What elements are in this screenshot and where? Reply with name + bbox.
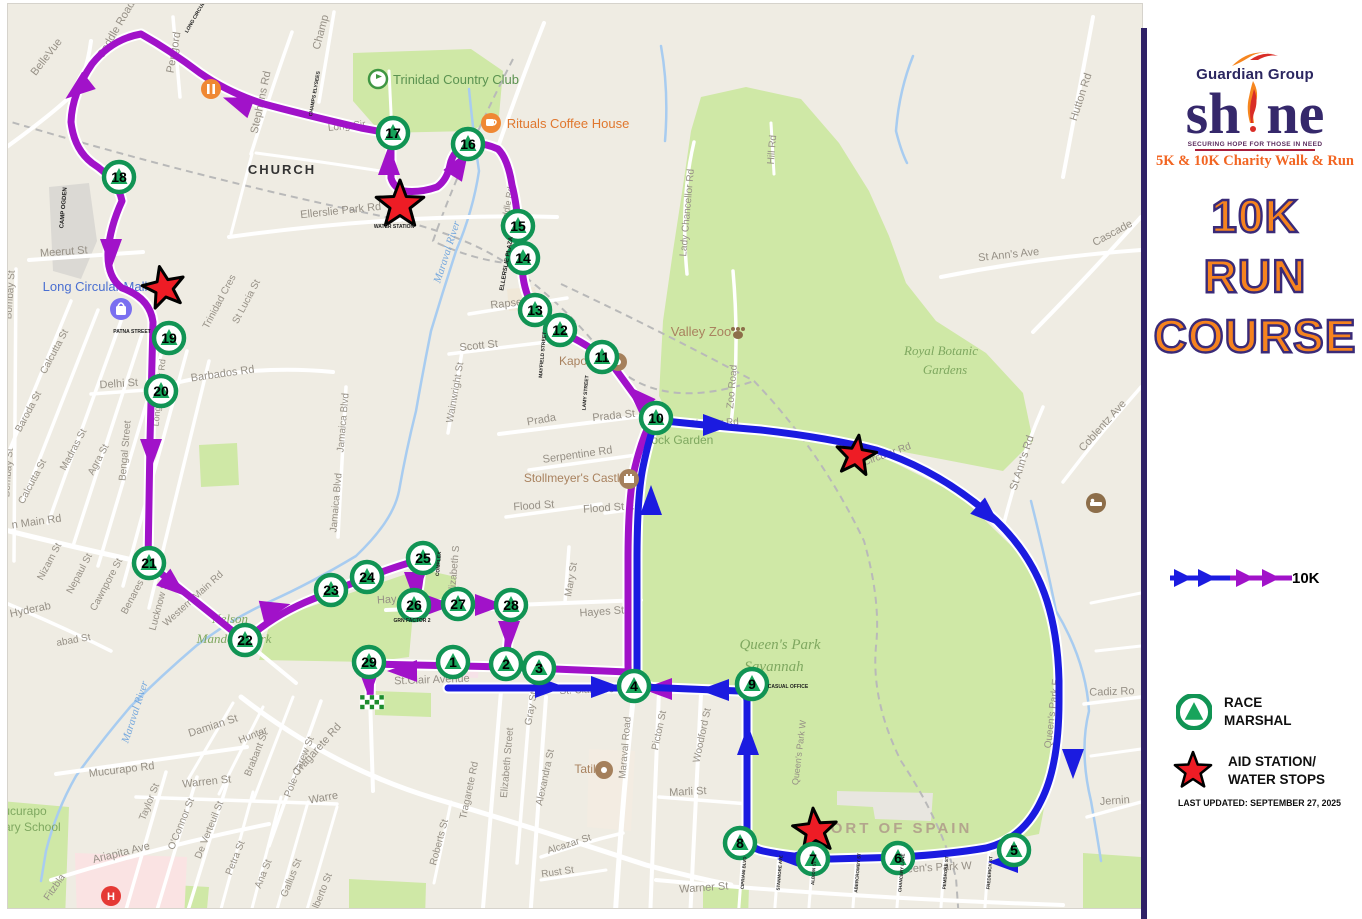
golf-icon xyxy=(369,70,387,88)
dot-brown-icon xyxy=(601,767,607,773)
marshal-number: 16 xyxy=(460,136,476,152)
race-marshal-marker: 29 xyxy=(354,647,384,677)
golf-icon xyxy=(369,70,387,88)
page: { "colors":{ "route_blue":"#1b1be0","rou… xyxy=(0,0,1362,919)
marshal-number: 19 xyxy=(161,330,177,346)
street-label: ucurapo xyxy=(8,804,47,818)
marshal-number: 4 xyxy=(630,678,638,694)
gate-icon xyxy=(201,79,221,99)
street-label: Valley Zoo xyxy=(671,324,731,339)
aid-station-label: AID STATION/ WATER STOPS xyxy=(1228,753,1325,789)
route-line-sample xyxy=(1168,562,1294,594)
marshal-number: 5 xyxy=(1010,842,1018,858)
finish-flag-icon xyxy=(365,705,370,710)
race-marshal-marker: 6 xyxy=(883,843,913,873)
race-marshal-marker: 17 xyxy=(378,118,408,148)
race-marshal-marker: 26 xyxy=(399,590,429,620)
finish-flag-icon xyxy=(370,705,375,710)
micro-label: GRN FACTOR 2 xyxy=(393,618,430,624)
marshal-number: 17 xyxy=(385,125,401,141)
finish-flag-icon xyxy=(379,705,384,710)
race-marshal-marker: 28 xyxy=(496,590,526,620)
finish-flag-icon xyxy=(379,700,384,705)
logo-swoosh-icon xyxy=(1220,46,1290,68)
marshal-number: 14 xyxy=(515,250,531,266)
race-marshal-marker: 9 xyxy=(737,669,767,699)
race-marshal-marker: 5 xyxy=(999,835,1029,865)
finish-flag-icon xyxy=(374,700,379,705)
race-marshal-marker: 24 xyxy=(352,562,382,592)
street-label: Cadiz Ro xyxy=(1089,685,1135,699)
marshal-number: 1 xyxy=(449,654,457,670)
paw-toe xyxy=(731,327,735,331)
sidebar-divider xyxy=(1141,28,1147,919)
legend-arrow-icon xyxy=(1262,569,1280,587)
park-area xyxy=(1083,853,1141,908)
aid-station-icon xyxy=(1172,750,1216,792)
marshal-number: 15 xyxy=(510,218,526,234)
shine-word-left: sh xyxy=(1186,81,1241,146)
race-marshal-marker: 16 xyxy=(453,129,483,159)
race-marshal-marker: 22 xyxy=(230,625,260,655)
street-label: lary School xyxy=(8,820,61,834)
paw-toe xyxy=(741,327,745,331)
street-label: Rituals Coffee House xyxy=(507,116,630,131)
castle-icon xyxy=(619,469,639,489)
bag xyxy=(116,306,126,315)
shine-word-right: ne xyxy=(1266,81,1324,146)
marshal-number: 18 xyxy=(111,169,127,185)
race-marshal-marker: 8 xyxy=(725,828,755,858)
street-label: Marli St xyxy=(669,785,707,799)
street-label: Royal Botanic xyxy=(903,343,978,358)
legend-star-icon xyxy=(1175,752,1211,786)
micro-label: CASUAL OFFICE xyxy=(768,684,809,690)
cup xyxy=(486,119,494,126)
map-canvas: BelleVueSaddle RoadPerigordStephens RdCh… xyxy=(8,4,1142,908)
marshal-number: 29 xyxy=(361,654,377,670)
marshal-number: 12 xyxy=(552,322,568,338)
race-marshal-marker: 19 xyxy=(154,323,184,353)
paw xyxy=(733,331,743,339)
street-label: CHURCH xyxy=(248,162,316,177)
aid-station-line1: AID STATION/ xyxy=(1228,753,1325,771)
dot-brown-icon xyxy=(595,761,613,779)
finish-flag-icon xyxy=(374,705,379,710)
race-marshal-label: RACE MARSHAL xyxy=(1224,694,1292,730)
finish-flag-icon xyxy=(365,695,370,700)
micro-label: WATER STATION xyxy=(374,224,415,230)
marshal-number: 27 xyxy=(450,596,466,612)
legend-arrow-icon xyxy=(1198,569,1216,587)
race-marshal-marker: 2 xyxy=(491,649,521,679)
legend-arrow-icon xyxy=(1236,569,1254,587)
marshal-number: 21 xyxy=(141,555,157,571)
course-map: BelleVueSaddle RoadPerigordStephens RdCh… xyxy=(7,3,1143,909)
street-label: Trinidad Country Club xyxy=(393,72,519,87)
hospital-icon: H xyxy=(101,886,121,906)
race-marshal-marker: 13 xyxy=(520,295,550,325)
race-marshal-line2: MARSHAL xyxy=(1224,712,1292,730)
finish-flag-icon xyxy=(360,700,365,705)
marshal-number: 25 xyxy=(415,550,431,566)
race-marshal-marker: 10 xyxy=(641,403,671,433)
finish-flag-icon xyxy=(360,705,365,710)
marshal-number: 8 xyxy=(736,835,744,851)
micro-label: PATNA STREET xyxy=(113,329,150,335)
park-area xyxy=(199,443,239,487)
marshal-number: 20 xyxy=(153,383,169,399)
finish-flag-icon xyxy=(370,695,375,700)
course-title: 10K RUN COURSE xyxy=(1148,186,1362,366)
race-marshal-line1: RACE xyxy=(1224,694,1292,712)
street-label: Gardens xyxy=(923,362,967,377)
street-label: Queen's Park xyxy=(739,637,820,653)
finish-flag-icon xyxy=(365,700,370,705)
mall-icon xyxy=(110,298,132,320)
pillow xyxy=(1091,499,1095,503)
marshal-number: 22 xyxy=(237,632,253,648)
legend-route-label: 10K xyxy=(1292,570,1320,587)
race-marshal-marker: 27 xyxy=(443,589,473,619)
shine-logo: Guardian Group sh ne SECURING HOPE FOR T… xyxy=(1148,46,1362,170)
bed xyxy=(1090,502,1102,506)
legend-aid-station: AID STATION/ WATER STOPS xyxy=(1172,750,1325,792)
last-updated: LAST UPDATED: SEPTEMBER 27, 2025 xyxy=(1178,798,1341,809)
hospital-h: H xyxy=(107,891,115,903)
event-name: 5K & 10K Charity Walk & Run xyxy=(1148,153,1362,170)
race-marshal-marker: 18 xyxy=(104,162,134,192)
race-marshal-marker: 3 xyxy=(524,653,554,683)
race-marshal-marker: 23 xyxy=(316,575,346,605)
marshal-number: 9 xyxy=(748,676,756,692)
marshal-number: 26 xyxy=(406,597,422,613)
bar xyxy=(212,84,215,94)
bed-icon xyxy=(1086,493,1106,513)
race-marshal-marker: 21 xyxy=(134,548,164,578)
finish-flag-icon xyxy=(370,700,375,705)
race-marshal-marker: 15 xyxy=(503,211,533,241)
legend-arrow-icon xyxy=(1174,569,1192,587)
sidebar: Guardian Group sh ne SECURING HOPE FOR T… xyxy=(1148,0,1362,919)
marshal-number: 10 xyxy=(648,410,664,426)
aid-station-line2: WATER STOPS xyxy=(1228,771,1325,789)
legend-race-marshal: RACE MARSHAL xyxy=(1176,694,1292,730)
gate-icon xyxy=(201,79,221,99)
course-title-line3: COURSE xyxy=(1148,306,1362,366)
finish-flag-icon xyxy=(374,695,379,700)
marshal-number: 13 xyxy=(527,302,543,318)
street-label: PORT OF SPAIN xyxy=(818,820,973,837)
bar xyxy=(207,84,210,94)
street-label: Stollmeyer's Castle xyxy=(524,471,627,485)
race-marshal-marker: 11 xyxy=(587,342,617,372)
legend-route: 10K xyxy=(1168,562,1320,594)
finish-flag-icon xyxy=(379,695,384,700)
street-label: Hay xyxy=(377,593,398,606)
race-marshal-icon xyxy=(1176,694,1212,730)
race-marshal-marker: 4 xyxy=(619,671,649,701)
marshal-number: 28 xyxy=(503,597,519,613)
race-marshal-marker: 1 xyxy=(438,647,468,677)
race-marshal-marker: 20 xyxy=(146,376,176,406)
marshal-number: 11 xyxy=(595,349,610,365)
coffee-icon xyxy=(481,113,501,133)
street-label: Tatil xyxy=(574,762,595,776)
shine-wordmark: sh ne xyxy=(1148,79,1362,153)
marshal-number: 3 xyxy=(535,660,543,676)
flame-icon xyxy=(1240,79,1266,141)
course-title-line1: 10K xyxy=(1148,186,1362,246)
marshal-number: 2 xyxy=(502,656,510,672)
marshal-number: 24 xyxy=(359,569,375,585)
street-label: Jernin xyxy=(1099,794,1130,808)
race-marshal-marker: 12 xyxy=(545,315,575,345)
marshal-number: 23 xyxy=(323,582,339,598)
course-title-line2: RUN xyxy=(1148,246,1362,306)
race-marshal-marker xyxy=(1178,696,1211,729)
race-marshal-marker: 25 xyxy=(408,543,438,573)
park-area xyxy=(353,49,503,133)
finish-flag-icon xyxy=(360,695,365,700)
paw-toe xyxy=(736,327,740,331)
park-area xyxy=(349,879,426,908)
